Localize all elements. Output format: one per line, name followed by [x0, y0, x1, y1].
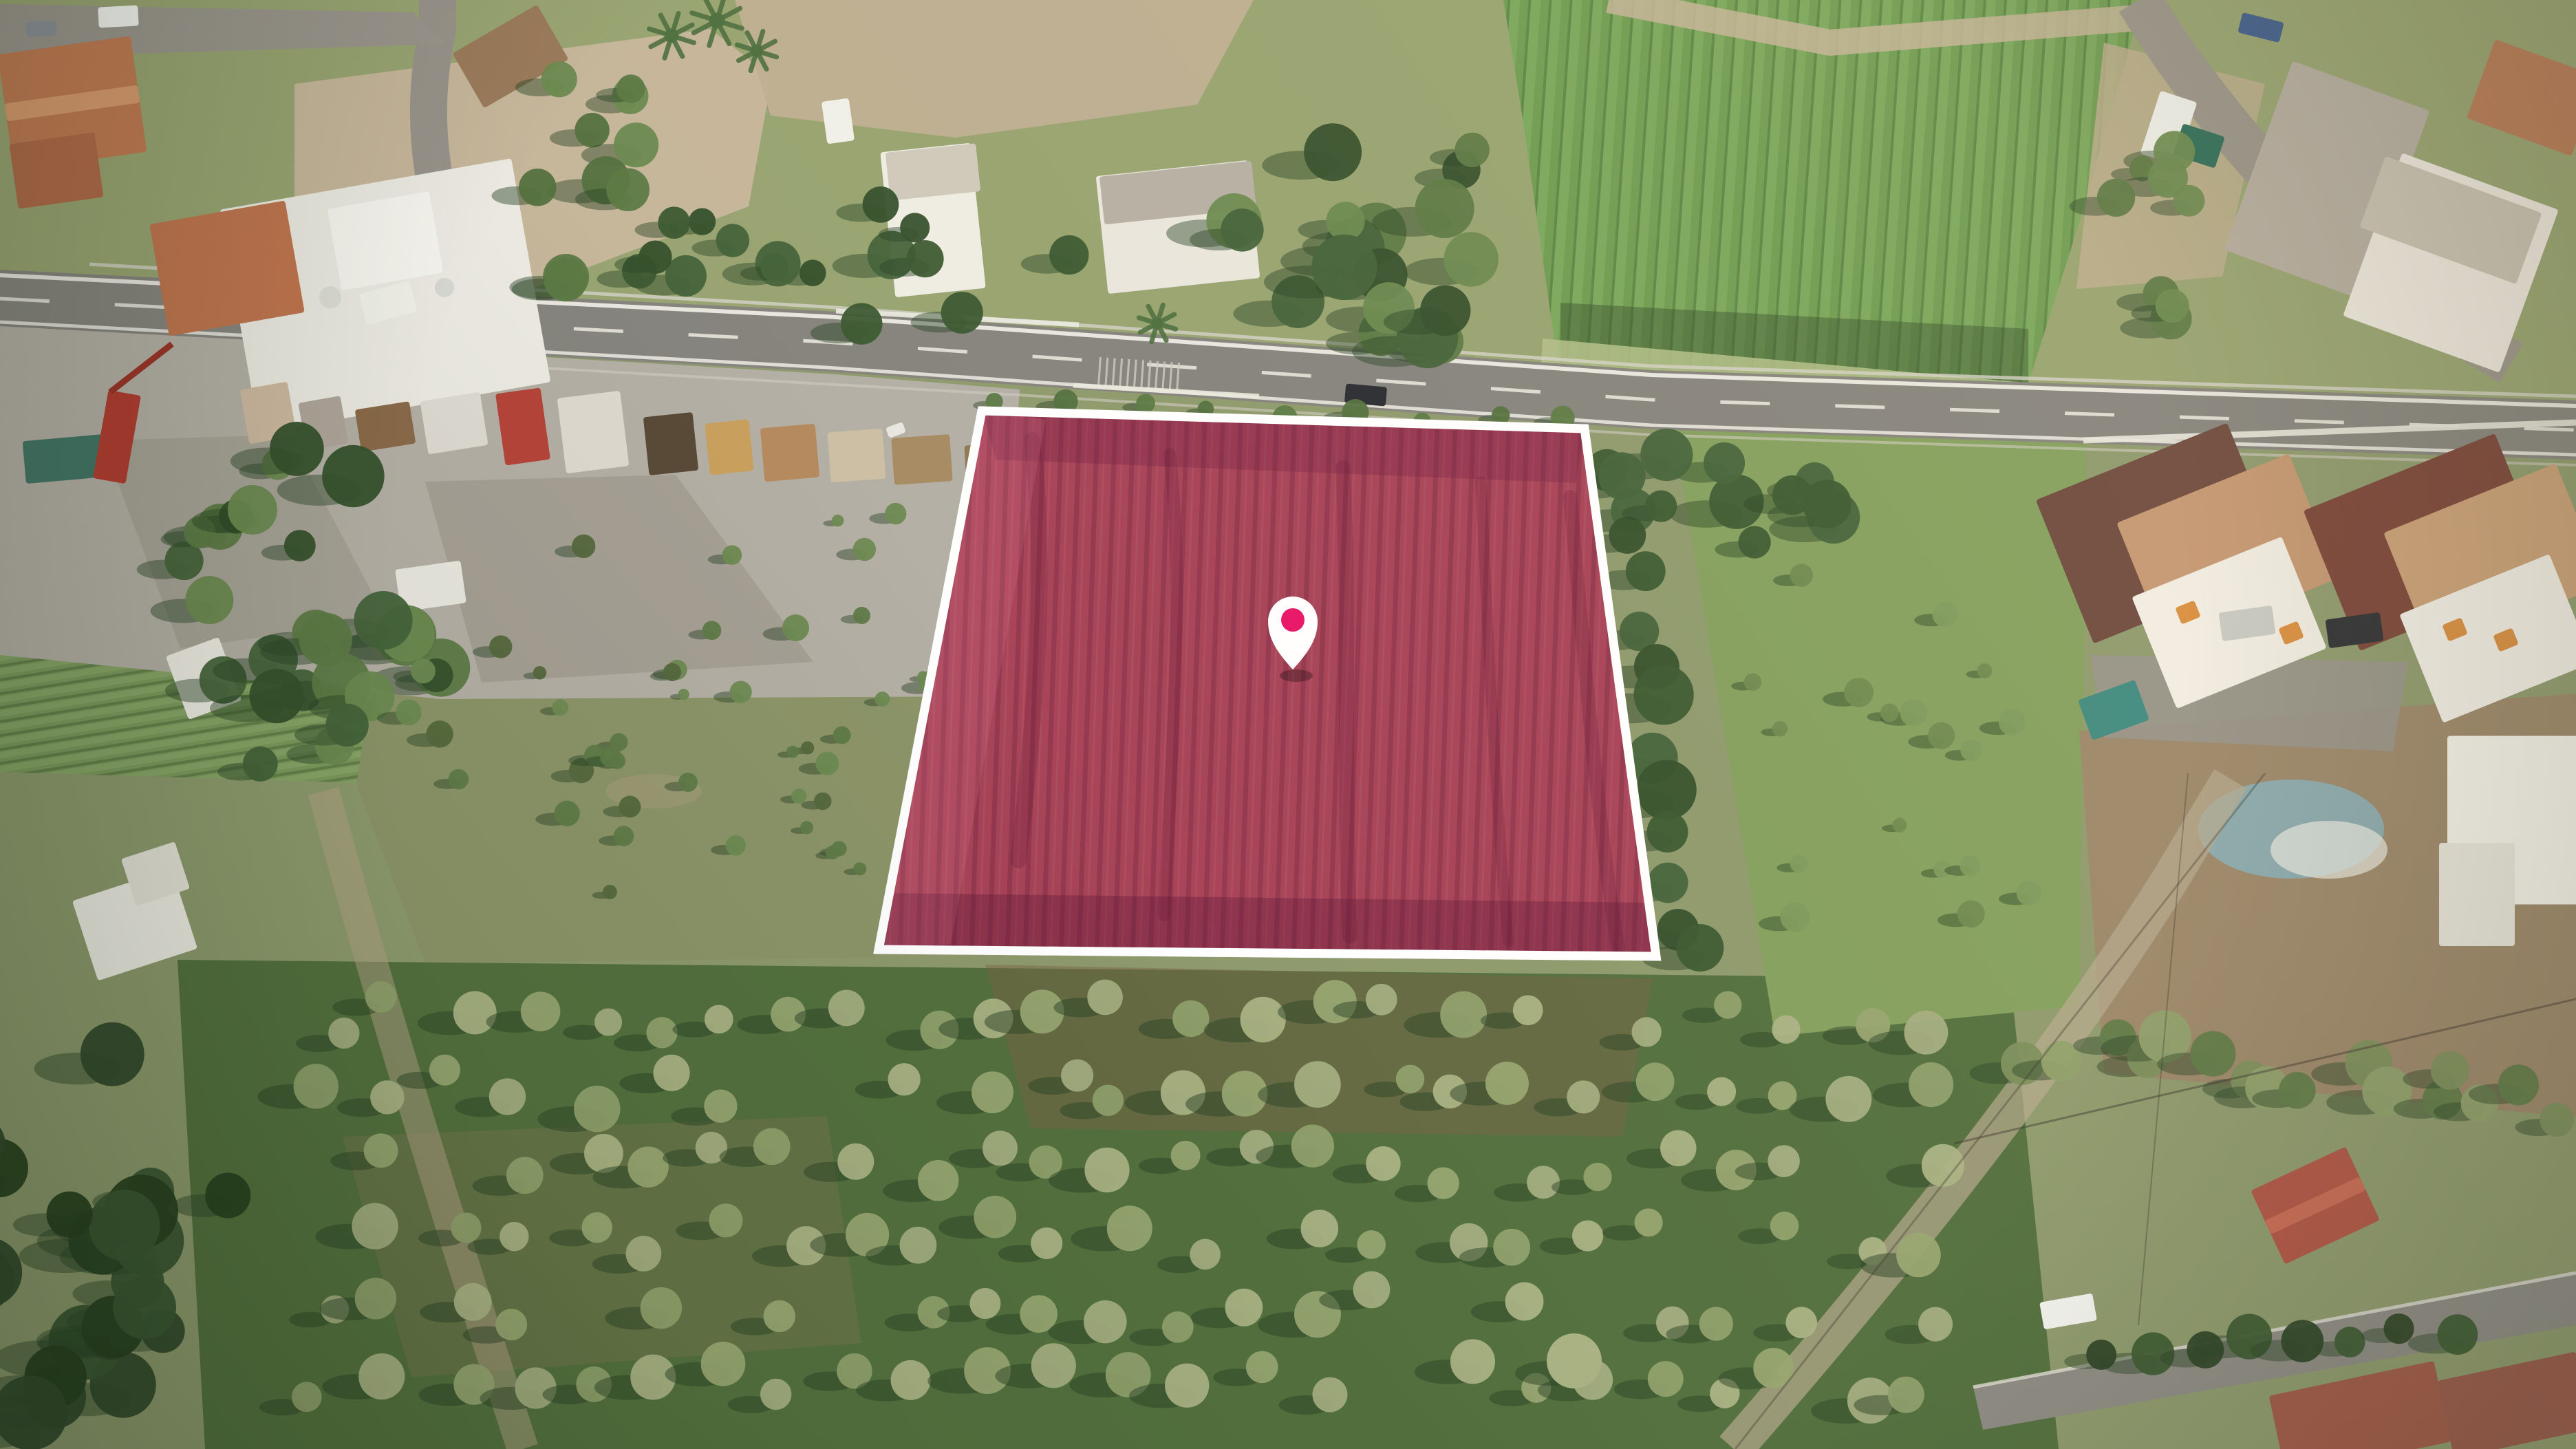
vignette-overlay [0, 0, 2576, 1449]
scene-root [0, 0, 2576, 1449]
aerial-photo-stage [0, 0, 2576, 1449]
aerial-photo [0, 0, 2576, 1449]
